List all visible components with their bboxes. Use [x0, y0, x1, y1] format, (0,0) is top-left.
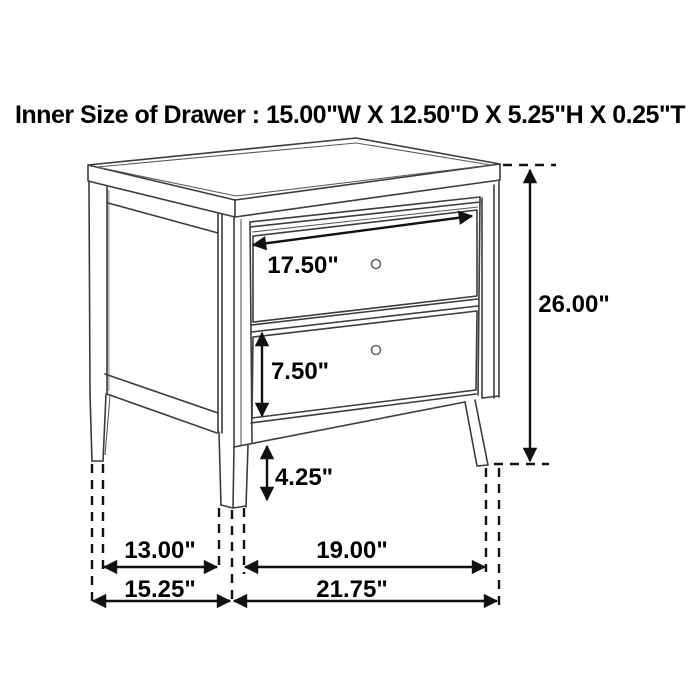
- lower-drawer-knob: [372, 346, 381, 355]
- dim-drawer-width: 17.50": [253, 216, 472, 279]
- dim-base-outer-front-label: 21.75": [316, 576, 387, 603]
- left-side-panel: [89, 181, 241, 447]
- dim-drawer-width-label: 17.50": [267, 252, 338, 279]
- dimension-diagram-page: Inner Size of Drawer : 15.00"W X 12.50"D…: [0, 0, 700, 700]
- dim-drawer-height-label: 7.50": [271, 358, 329, 385]
- dim-base-inner-side-label: 13.00": [124, 537, 195, 564]
- nightstand-drawing: 17.50" 7.50" 4.25" 26.00" 13.0: [0, 0, 700, 700]
- nightstand-outline: [88, 138, 500, 508]
- dim-base-inner-front: 19.00": [245, 537, 485, 567]
- dim-overall-height: 26.00": [494, 165, 610, 464]
- dim-base-outer-side: 15.25": [93, 576, 230, 603]
- dim-base-outer-front: 21.75": [234, 576, 497, 603]
- dim-base-inner-side: 13.00": [104, 537, 217, 567]
- front-frame: [234, 181, 499, 447]
- table-top: [88, 138, 500, 217]
- dim-leg-height: 4.25": [267, 446, 333, 500]
- dim-base-inner-front-label: 19.00": [316, 537, 387, 564]
- dim-drawer-height: 7.50": [262, 333, 329, 416]
- back-left-leg: [90, 394, 110, 461]
- dim-leg-height-label: 4.25": [275, 464, 333, 491]
- front-right-leg: [465, 400, 488, 466]
- dim-base-outer-side-label: 15.25": [124, 576, 195, 603]
- dim-overall-height-label: 26.00": [538, 291, 609, 318]
- upper-drawer-knob: [372, 260, 381, 269]
